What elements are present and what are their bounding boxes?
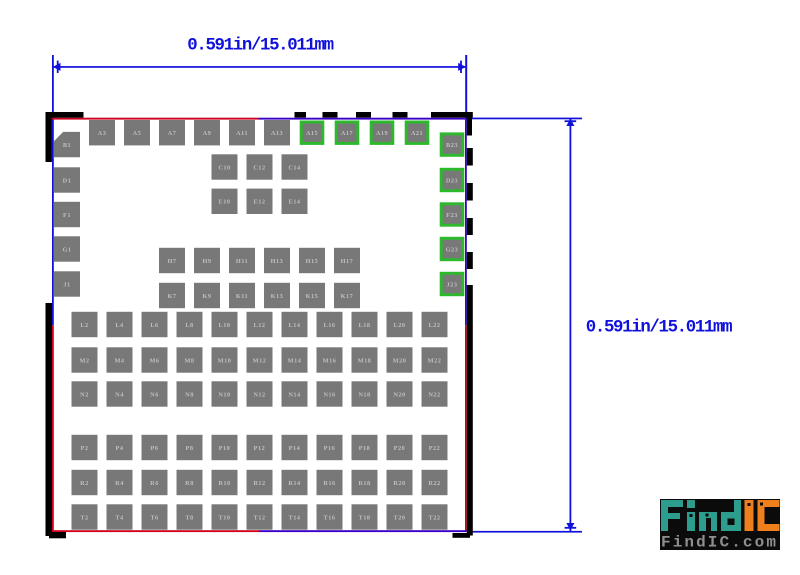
svg-text:C10: C10 xyxy=(218,164,230,171)
svg-text:L16: L16 xyxy=(324,322,336,329)
svg-text:R18: R18 xyxy=(358,480,370,487)
svg-text:H13: H13 xyxy=(271,258,284,265)
svg-text:L14: L14 xyxy=(289,322,301,329)
svg-text:L8: L8 xyxy=(185,322,193,329)
svg-text:A5: A5 xyxy=(133,130,142,137)
svg-text:R4: R4 xyxy=(115,480,124,487)
svg-text:N8: N8 xyxy=(185,391,194,398)
svg-text:N22: N22 xyxy=(428,391,440,398)
svg-text:P12: P12 xyxy=(254,445,266,452)
svg-text:A11: A11 xyxy=(236,130,248,137)
svg-text:N12: N12 xyxy=(253,391,265,398)
svg-text:G23: G23 xyxy=(446,246,459,253)
svg-text:M4: M4 xyxy=(114,357,124,364)
svg-text:H7: H7 xyxy=(167,258,176,265)
svg-text:T4: T4 xyxy=(115,514,124,521)
svg-text:P18: P18 xyxy=(359,445,371,452)
svg-text:M12: M12 xyxy=(253,357,267,364)
svg-text:R6: R6 xyxy=(150,480,159,487)
svg-text:M8: M8 xyxy=(184,357,194,364)
svg-text:T18: T18 xyxy=(359,514,371,521)
svg-text:R12: R12 xyxy=(253,480,265,487)
svg-text:M6: M6 xyxy=(149,357,159,364)
svg-text:T10: T10 xyxy=(219,514,231,521)
svg-text:M2: M2 xyxy=(79,357,89,364)
svg-text:K11: K11 xyxy=(236,293,248,300)
svg-text:P4: P4 xyxy=(116,445,124,452)
svg-text:F23: F23 xyxy=(446,212,458,219)
svg-text:T8: T8 xyxy=(185,514,193,521)
svg-text:P2: P2 xyxy=(81,445,89,452)
svg-text:H15: H15 xyxy=(306,258,319,265)
svg-text:N18: N18 xyxy=(358,391,370,398)
svg-text:M18: M18 xyxy=(358,357,372,364)
svg-text:R8: R8 xyxy=(185,480,194,487)
svg-text:L2: L2 xyxy=(80,322,88,329)
svg-text:T22: T22 xyxy=(429,514,441,521)
svg-text:A7: A7 xyxy=(168,130,177,137)
svg-text:A17: A17 xyxy=(341,130,353,137)
svg-text:N4: N4 xyxy=(115,391,124,398)
svg-text:N14: N14 xyxy=(288,391,301,398)
svg-text:M10: M10 xyxy=(218,357,232,364)
svg-text:L12: L12 xyxy=(254,322,266,329)
svg-text:G1: G1 xyxy=(62,246,71,253)
svg-text:P14: P14 xyxy=(289,445,301,452)
svg-text:N16: N16 xyxy=(323,391,335,398)
svg-text:H17: H17 xyxy=(341,258,354,265)
svg-text:L18: L18 xyxy=(359,322,371,329)
svg-text:E14: E14 xyxy=(289,199,301,206)
svg-text:N6: N6 xyxy=(150,391,159,398)
svg-text:P20: P20 xyxy=(394,445,406,452)
svg-text:K9: K9 xyxy=(202,293,211,300)
svg-text:L22: L22 xyxy=(429,322,441,329)
svg-text:N2: N2 xyxy=(80,391,89,398)
svg-text:T2: T2 xyxy=(80,514,88,521)
svg-text:N20: N20 xyxy=(393,391,405,398)
svg-text:K13: K13 xyxy=(271,293,284,300)
svg-text:T6: T6 xyxy=(150,514,158,521)
svg-text:C12: C12 xyxy=(253,164,265,171)
svg-text:E12: E12 xyxy=(254,199,266,206)
svg-text:L20: L20 xyxy=(394,322,406,329)
svg-text:C14: C14 xyxy=(288,164,301,171)
svg-text:E10: E10 xyxy=(219,199,231,206)
svg-text:H11: H11 xyxy=(236,258,248,265)
svg-text:P8: P8 xyxy=(186,445,194,452)
svg-text:B1: B1 xyxy=(63,142,71,149)
svg-text:A9: A9 xyxy=(203,130,212,137)
svg-text:N10: N10 xyxy=(218,391,230,398)
svg-text:D23: D23 xyxy=(446,177,458,184)
svg-text:T16: T16 xyxy=(324,514,336,521)
svg-text:R14: R14 xyxy=(288,480,301,487)
svg-text:A15: A15 xyxy=(306,130,318,137)
svg-text:T20: T20 xyxy=(394,514,406,521)
svg-text:0.591in/15.011mm: 0.591in/15.011mm xyxy=(586,319,732,338)
svg-text:B23: B23 xyxy=(446,142,458,149)
svg-text:R16: R16 xyxy=(323,480,335,487)
svg-text:T12: T12 xyxy=(254,514,266,521)
svg-text:K15: K15 xyxy=(306,293,319,300)
svg-text:M22: M22 xyxy=(428,357,442,364)
svg-text:L10: L10 xyxy=(219,322,231,329)
svg-text:F1: F1 xyxy=(63,212,71,219)
svg-text:R2: R2 xyxy=(80,480,89,487)
svg-text:T14: T14 xyxy=(289,514,301,521)
svg-text:P6: P6 xyxy=(151,445,159,452)
svg-text:FindIC.com: FindIC.com xyxy=(661,534,778,552)
svg-text:K17: K17 xyxy=(341,293,354,300)
svg-text:A13: A13 xyxy=(271,130,283,137)
svg-text:0.591in/15.011mm: 0.591in/15.011mm xyxy=(187,36,333,55)
svg-text:K7: K7 xyxy=(167,293,176,300)
svg-text:D1: D1 xyxy=(63,177,72,184)
svg-text:R22: R22 xyxy=(428,480,440,487)
svg-text:M20: M20 xyxy=(393,357,407,364)
svg-text:A21: A21 xyxy=(411,130,423,137)
svg-text:P10: P10 xyxy=(219,445,231,452)
svg-text:R10: R10 xyxy=(218,480,230,487)
svg-text:R20: R20 xyxy=(393,480,405,487)
svg-text:J1: J1 xyxy=(63,281,70,288)
svg-text:L6: L6 xyxy=(150,322,158,329)
svg-text:A19: A19 xyxy=(376,130,388,137)
svg-text:A3: A3 xyxy=(98,130,107,137)
svg-text:M16: M16 xyxy=(323,357,337,364)
svg-text:P22: P22 xyxy=(429,445,441,452)
svg-text:L4: L4 xyxy=(115,322,124,329)
svg-text:H9: H9 xyxy=(202,258,211,265)
svg-text:J23: J23 xyxy=(447,281,458,288)
svg-text:P16: P16 xyxy=(324,445,336,452)
svg-text:M14: M14 xyxy=(288,357,302,364)
